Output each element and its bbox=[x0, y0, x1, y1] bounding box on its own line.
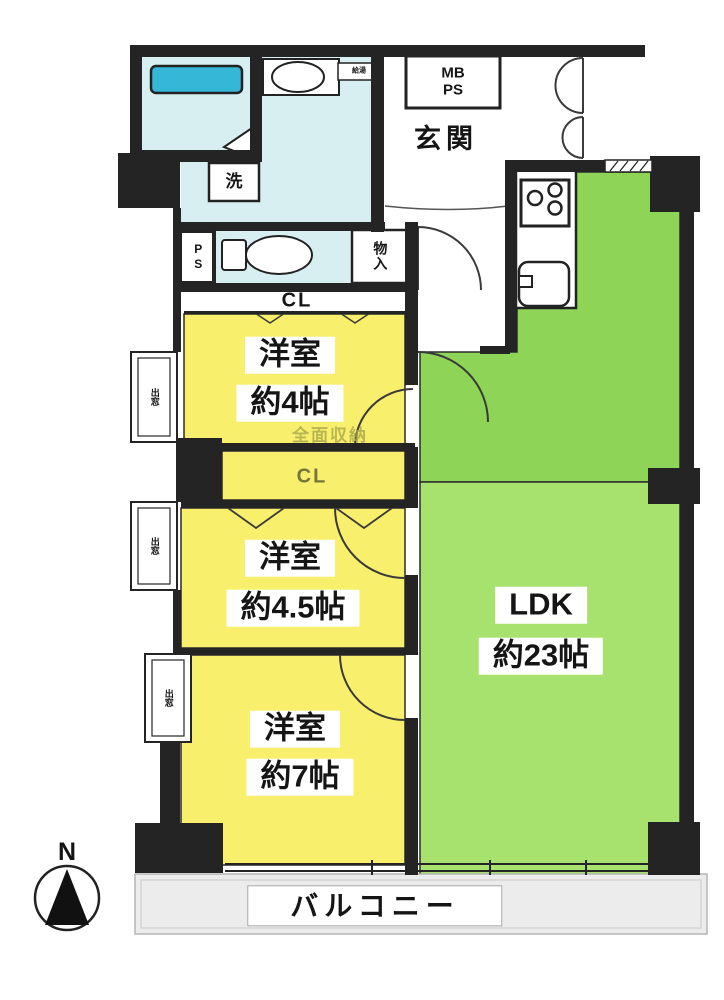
toilet-bowl-icon bbox=[246, 236, 312, 274]
room45-name: 洋室 bbox=[245, 540, 335, 577]
burner-icon bbox=[549, 184, 562, 197]
pillar bbox=[118, 153, 180, 208]
wall bbox=[160, 742, 180, 827]
ldk-size: 約23帖 bbox=[479, 638, 603, 675]
room4-size: 約4帖 bbox=[236, 385, 343, 422]
pipe-space-label: PS bbox=[192, 242, 205, 272]
wall bbox=[505, 160, 517, 352]
closet-top-label: CL bbox=[282, 291, 313, 312]
wall bbox=[173, 208, 181, 352]
entrance-door-icon bbox=[555, 58, 583, 113]
water-heater-label: 給湯 bbox=[352, 67, 366, 74]
wash-basin-icon bbox=[272, 62, 324, 92]
room4-floor bbox=[184, 314, 405, 444]
pillar bbox=[650, 156, 700, 212]
wall bbox=[176, 222, 385, 231]
burner-icon bbox=[528, 191, 542, 205]
kitchen-window bbox=[605, 160, 652, 172]
ldk-name: LDK bbox=[495, 587, 587, 624]
wall bbox=[680, 212, 694, 822]
wall bbox=[480, 346, 510, 354]
wall bbox=[405, 447, 418, 508]
pillar bbox=[176, 438, 222, 502]
ps-meter-label: PS bbox=[441, 82, 464, 99]
room45-floor bbox=[181, 508, 405, 648]
ldk-floor-lower bbox=[420, 482, 680, 875]
compass-north-label: N bbox=[58, 839, 76, 865]
entrance-door-icon bbox=[563, 117, 584, 158]
wall bbox=[212, 231, 216, 283]
bay-window-label: 出窓 bbox=[149, 388, 158, 406]
bathtub-icon bbox=[151, 66, 242, 93]
wall bbox=[173, 590, 181, 656]
closet-mid-label: CL bbox=[297, 467, 328, 488]
pillar bbox=[648, 468, 700, 504]
entrance-step-line bbox=[385, 206, 508, 210]
floor-plan: MB PS 玄関 給湯 洗 PS 物入 CL 洋室 約4帖 全面収納 CL 洋室… bbox=[0, 0, 724, 1000]
wall bbox=[405, 222, 418, 385]
room7-name: 洋室 bbox=[250, 711, 340, 748]
washer-label: 洗 bbox=[226, 173, 243, 191]
wall bbox=[405, 718, 418, 875]
room4-name: 洋室 bbox=[245, 337, 335, 374]
wall bbox=[130, 45, 645, 57]
pillar bbox=[135, 823, 223, 873]
wall bbox=[130, 45, 142, 157]
hall-door-icon bbox=[418, 227, 481, 290]
mb-label: MB bbox=[441, 66, 464, 83]
compass-icon bbox=[35, 866, 99, 930]
burner-icon bbox=[549, 202, 562, 215]
balcony-label: バルコニー bbox=[247, 885, 502, 926]
toilet-tank-icon bbox=[222, 240, 246, 270]
room7-size: 約7帖 bbox=[246, 759, 353, 796]
floor-plan-drawing bbox=[0, 0, 724, 1000]
mbps-label: MB PS bbox=[441, 66, 464, 99]
wall bbox=[405, 575, 418, 655]
sink-tap-icon bbox=[519, 276, 532, 287]
pillar bbox=[648, 822, 700, 875]
wall-storage-note: 全面収納 bbox=[292, 427, 368, 445]
wall bbox=[250, 50, 262, 162]
wall bbox=[505, 160, 605, 172]
entrance-label: 玄関 bbox=[414, 125, 478, 153]
bay-window-label: 出窓 bbox=[149, 537, 158, 555]
storage-label: 物入 bbox=[373, 241, 388, 271]
wall bbox=[371, 52, 384, 232]
room45-size: 約4.5帖 bbox=[226, 590, 359, 627]
bay-window-label: 出窓 bbox=[163, 689, 172, 707]
wall bbox=[181, 648, 405, 655]
